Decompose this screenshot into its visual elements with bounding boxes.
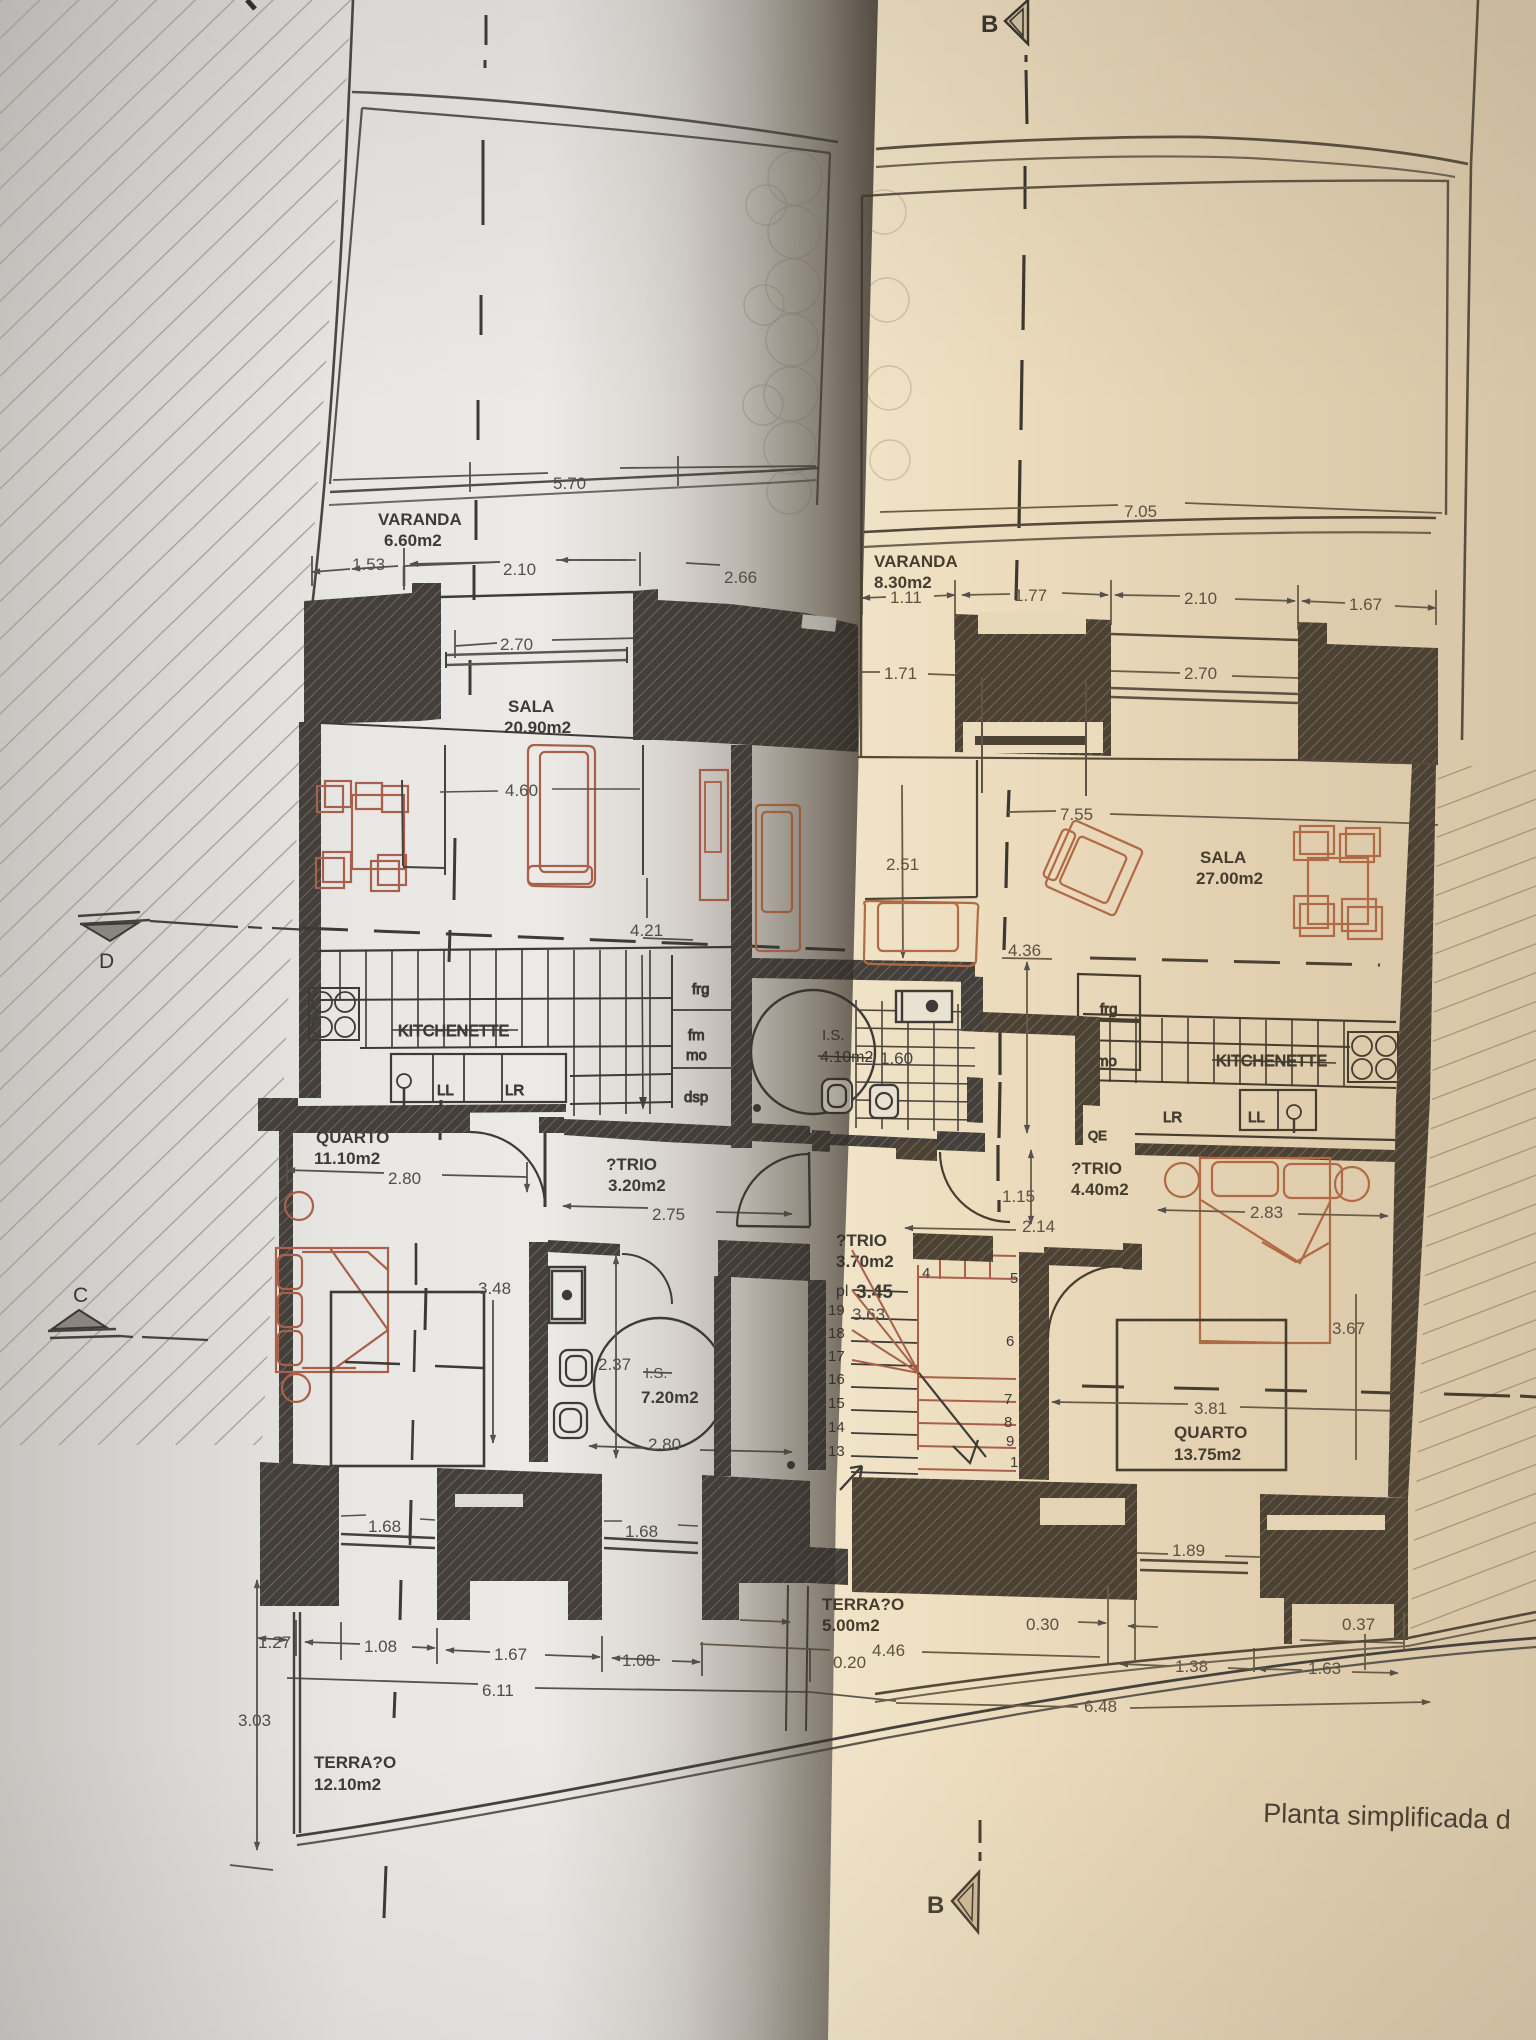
svg-text:VARANDA: VARANDA [874, 552, 958, 571]
svg-text:6.48: 6.48 [1084, 1697, 1117, 1716]
svg-text:LL: LL [437, 1082, 454, 1099]
svg-text:8: 8 [1004, 1414, 1012, 1431]
svg-text:B: B [981, 11, 998, 38]
svg-text:QE: QE [1088, 1128, 1107, 1143]
svg-text:3.48: 3.48 [478, 1279, 511, 1298]
svg-text:frg: frg [1100, 1001, 1118, 1018]
svg-text:?TRIO: ?TRIO [1071, 1159, 1122, 1178]
svg-text:2.14: 2.14 [1022, 1217, 1055, 1236]
svg-text:5: 5 [1010, 1270, 1018, 1287]
svg-text:1.08: 1.08 [364, 1637, 397, 1656]
svg-text:1.15: 1.15 [1002, 1187, 1035, 1206]
svg-text:1.68: 1.68 [368, 1517, 401, 1536]
svg-text:3.81: 3.81 [1194, 1399, 1227, 1418]
svg-text:4.60: 4.60 [505, 781, 538, 800]
svg-text:1.71: 1.71 [884, 664, 917, 683]
svg-text:7.05: 7.05 [1124, 502, 1157, 521]
svg-text:0.37: 0.37 [1342, 1615, 1375, 1634]
svg-text:C: C [73, 1284, 88, 1307]
svg-text:9: 9 [1006, 1433, 1014, 1450]
svg-text:11.10m2: 11.10m2 [314, 1149, 380, 1168]
svg-text:2.51: 2.51 [886, 855, 919, 874]
svg-text:4.40m2: 4.40m2 [1071, 1180, 1129, 1199]
svg-text:5.70: 5.70 [553, 474, 586, 493]
svg-text:B: B [927, 1892, 944, 1919]
svg-text:2.70: 2.70 [500, 635, 533, 654]
svg-text:20.90m2: 20.90m2 [504, 718, 571, 737]
svg-text:SALA: SALA [1200, 848, 1246, 867]
svg-text:1.27: 1.27 [258, 1633, 291, 1652]
svg-text:LL: LL [1248, 1109, 1265, 1126]
svg-text:LR: LR [1163, 1109, 1182, 1126]
svg-text:1.89: 1.89 [1172, 1541, 1205, 1560]
svg-text:D: D [99, 950, 114, 973]
svg-text:4.36: 4.36 [1008, 941, 1041, 960]
svg-text:13.75m2: 13.75m2 [1174, 1445, 1241, 1464]
svg-text:VARANDA: VARANDA [378, 510, 462, 529]
svg-text:2.83: 2.83 [1250, 1203, 1283, 1222]
svg-text:6.60m2: 6.60m2 [384, 531, 442, 550]
svg-text:1.77: 1.77 [1014, 586, 1047, 605]
svg-text:7: 7 [1004, 1391, 1012, 1408]
svg-text:1.67: 1.67 [1349, 595, 1382, 614]
svg-text:4: 4 [922, 1265, 930, 1282]
svg-text:4.46: 4.46 [872, 1641, 905, 1660]
svg-text:1.53: 1.53 [352, 555, 385, 574]
svg-text:QUARTO: QUARTO [1174, 1423, 1247, 1442]
svg-text:2.10: 2.10 [503, 560, 536, 579]
svg-text:SALA: SALA [508, 697, 554, 716]
svg-text:1.67: 1.67 [494, 1645, 527, 1664]
svg-text:2.37: 2.37 [598, 1355, 631, 1374]
svg-text:3.03: 3.03 [238, 1711, 271, 1730]
svg-text:6: 6 [1006, 1333, 1014, 1350]
svg-text:3.70m2: 3.70m2 [836, 1252, 894, 1271]
svg-text:1.63: 1.63 [1308, 1659, 1341, 1678]
svg-text:3.67: 3.67 [1332, 1319, 1365, 1338]
svg-text:TERRA?O: TERRA?O [314, 1753, 396, 1772]
svg-text:6.11: 6.11 [482, 1681, 514, 1700]
svg-text:0.20: 0.20 [833, 1653, 866, 1672]
svg-text:27.00m2: 27.00m2 [1196, 869, 1263, 888]
svg-text:1.38: 1.38 [1175, 1657, 1208, 1676]
svg-text:2.70: 2.70 [1184, 664, 1217, 683]
svg-text:2.80: 2.80 [388, 1169, 421, 1188]
svg-text:LR: LR [505, 1082, 524, 1099]
svg-text:2.10: 2.10 [1184, 589, 1217, 608]
svg-text:1.11: 1.11 [890, 588, 922, 607]
svg-text:KITCHENETTE: KITCHENETTE [398, 1023, 509, 1040]
svg-text:12.10m2: 12.10m2 [314, 1775, 381, 1794]
svg-text:0.30: 0.30 [1026, 1615, 1059, 1634]
